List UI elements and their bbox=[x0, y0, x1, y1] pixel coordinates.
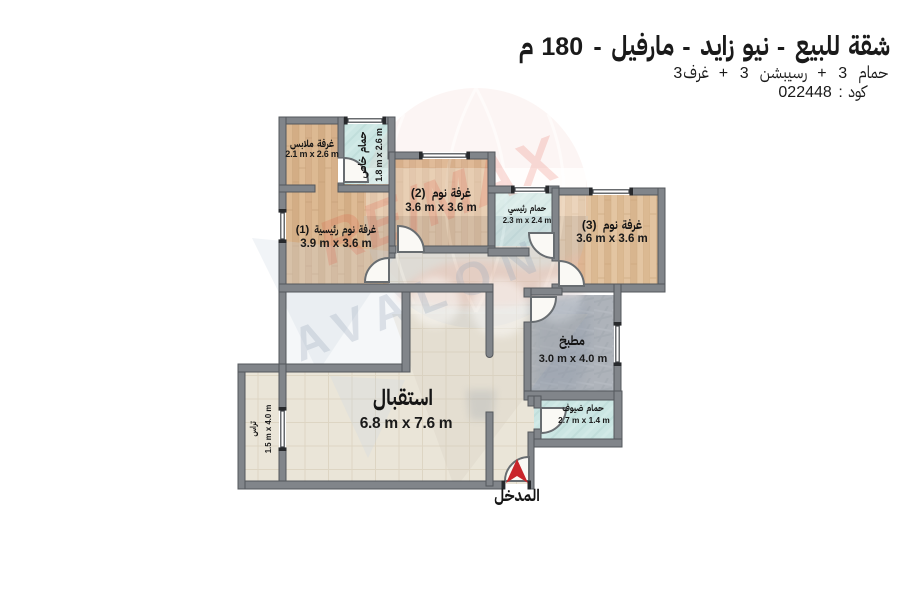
svg-text:+: + bbox=[817, 65, 826, 82]
svg-text:2.3 m x 2.4 m: 2.3 m x 2.4 m bbox=[503, 216, 552, 225]
svg-text:3.6 m x 3.6 m: 3.6 m x 3.6 m bbox=[405, 202, 477, 214]
svg-text:3: 3 bbox=[838, 65, 847, 82]
svg-text:2.7 m x 1.4 m: 2.7 m x 1.4 m bbox=[558, 415, 610, 425]
svg-text:180: 180 bbox=[541, 33, 583, 61]
svg-text:6.8 m x 7.6 m: 6.8 m x 7.6 m bbox=[360, 415, 453, 432]
svg-text:3.0 m x 4.0 m: 3.0 m x 4.0 m bbox=[539, 353, 608, 365]
svg-text:1.5 m x 4.0 m: 1.5 m x 4.0 m bbox=[264, 405, 273, 454]
svg-text:(2): (2) bbox=[411, 186, 426, 200]
svg-text:-: - bbox=[777, 33, 785, 61]
svg-text:022448: 022448 bbox=[778, 84, 831, 101]
svg-text:3: 3 bbox=[673, 65, 682, 82]
svg-text:+: + bbox=[719, 65, 728, 82]
svg-text:3.6 m x 3.6 m: 3.6 m x 3.6 m bbox=[576, 233, 648, 245]
svg-text:3.9 m x 3.6 m: 3.9 m x 3.6 m bbox=[300, 238, 372, 250]
svg-text:-: - bbox=[682, 33, 690, 61]
svg-text:-: - bbox=[593, 33, 601, 61]
svg-text:(1): (1) bbox=[296, 224, 310, 236]
svg-text::: : bbox=[838, 84, 842, 101]
svg-text:(3): (3) bbox=[582, 218, 597, 232]
svg-text:2.1 m x 2.6 m: 2.1 m x 2.6 m bbox=[285, 149, 339, 159]
svg-text:1.8 m x 2.6 m: 1.8 m x 2.6 m bbox=[374, 128, 384, 182]
svg-text:3: 3 bbox=[740, 65, 749, 82]
